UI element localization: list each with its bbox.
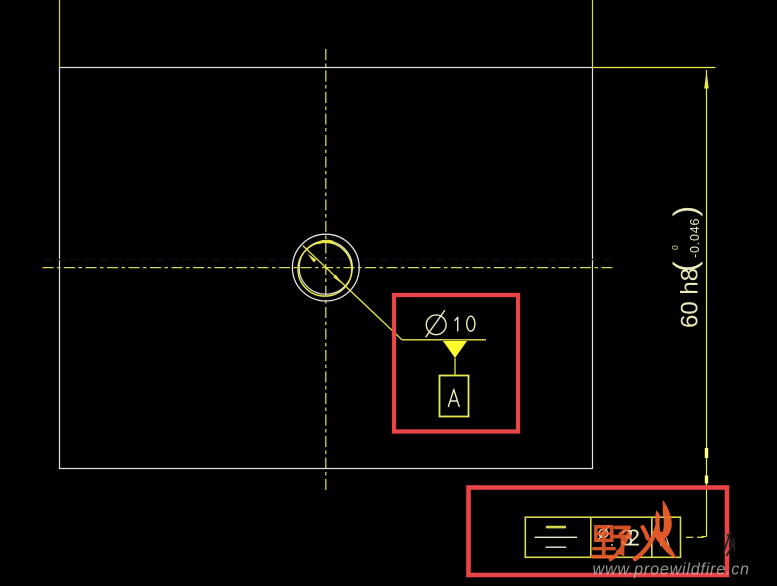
svg-text:0: 0 [670,245,680,250]
svg-text:): ) [667,206,703,217]
svg-text:-0.046: -0.046 [688,218,702,258]
svg-text:www.proewildfire.cn: www.proewildfire.cn [593,560,750,578]
svg-text:60 h8: 60 h8 [677,268,704,328]
svg-text:(: ( [667,261,703,272]
